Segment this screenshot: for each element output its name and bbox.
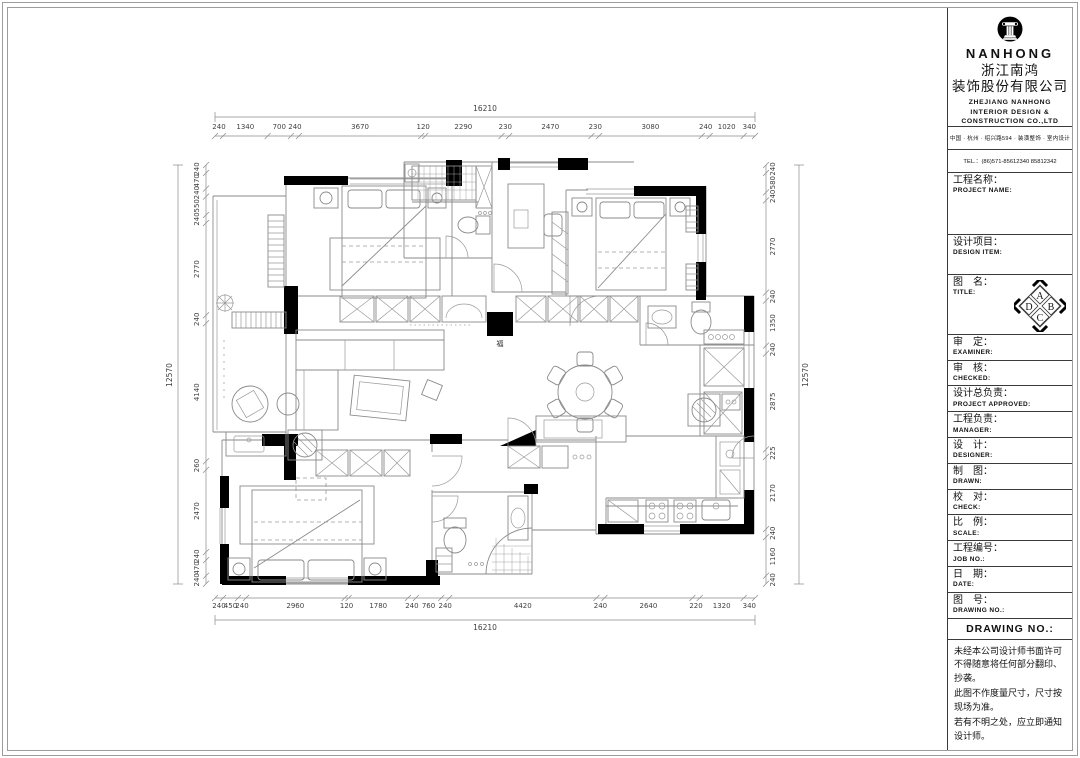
- bedroom-top-left: [314, 186, 446, 298]
- svg-text:1160: 1160: [769, 548, 777, 566]
- brand-name-en: ZHEJIANG NANHONG INTERIOR DESIGN & CONST…: [961, 98, 1058, 126]
- svg-text:2770: 2770: [769, 238, 777, 256]
- drawing-no-header: DRAWING NO.:: [948, 618, 1072, 639]
- svg-text:760: 760: [422, 602, 435, 610]
- svg-text:240: 240: [212, 123, 225, 131]
- brand-section: NANHONG 浙江南鸿 装饰股份有限公司 ZHEJIANG NANHONG I…: [948, 8, 1072, 126]
- svg-text:240: 240: [769, 162, 777, 175]
- svg-text:2290: 2290: [454, 123, 472, 131]
- svg-text:240: 240: [405, 602, 418, 610]
- svg-text:700: 700: [273, 123, 286, 131]
- svg-text:340: 340: [743, 602, 756, 610]
- balcony: [216, 215, 286, 400]
- svg-text:2170: 2170: [769, 484, 777, 502]
- svg-text:580: 580: [769, 176, 777, 189]
- svg-text:1320: 1320: [713, 602, 731, 610]
- dim-total-bottom: 16210: [473, 623, 497, 632]
- field-manager: 工程负责： MANAGER:: [948, 411, 1072, 437]
- bathroom-master: [436, 496, 532, 574]
- entry-arrow: [500, 430, 536, 446]
- svg-text:3670: 3670: [351, 123, 369, 131]
- interior-walls: [213, 162, 754, 584]
- svg-text:240: 240: [439, 602, 452, 610]
- field-designer: 设 计： DESIGNER:: [948, 437, 1072, 463]
- field-title: 图 名： TITLE: A B C D: [948, 274, 1072, 334]
- orientation-label-a: A: [1036, 291, 1044, 302]
- svg-text:240: 240: [235, 602, 248, 610]
- field-scale: 比 例： SCALE:: [948, 514, 1072, 540]
- svg-text:2470: 2470: [541, 123, 559, 131]
- svg-text:240: 240: [193, 549, 201, 562]
- svg-text:4420: 4420: [514, 602, 532, 610]
- svg-text:240: 240: [288, 123, 301, 131]
- orientation-label-b: B: [1048, 302, 1055, 313]
- svg-text:220: 220: [689, 602, 702, 610]
- titleblock-fields: 工程名称： PROJECT NAME: 设计项目： DESIGN ITEM: 图…: [948, 172, 1072, 618]
- field-job-no: 工程编号： JOB NO.:: [948, 540, 1072, 566]
- svg-text:1350: 1350: [769, 314, 777, 332]
- svg-text:470: 470: [193, 561, 201, 574]
- svg-text:2875: 2875: [769, 393, 777, 411]
- field-project-approved: 设计总负责： PROJECT APPROVED:: [948, 385, 1072, 411]
- svg-text:470: 470: [193, 174, 201, 187]
- nanhong-logo-icon: [987, 16, 1033, 42]
- company-address: 中国 · 杭州 · 绍兴路594 · 装潢整饰 · 室内设计: [948, 126, 1072, 149]
- svg-text:2960: 2960: [286, 602, 304, 610]
- svg-text:240: 240: [769, 190, 777, 203]
- svg-text:240: 240: [769, 343, 777, 356]
- field-design-item: 设计项目： DESIGN ITEM:: [948, 234, 1072, 274]
- title-block: NANHONG 浙江南鸿 装饰股份有限公司 ZHEJIANG NANHONG I…: [947, 8, 1072, 750]
- field-drawing-no: 图 号： DRAWING NO.:: [948, 592, 1072, 618]
- copyright-notes: 未经本公司设计师书面许可不得随意将任何部分翻印、抄袭。 此图不作度量尺寸，尺寸按…: [948, 639, 1072, 751]
- svg-text:2770: 2770: [193, 260, 201, 278]
- field-project-name: 工程名称： PROJECT NAME:: [948, 172, 1072, 234]
- svg-text:240: 240: [769, 573, 777, 586]
- company-tel: TEL.：(86)571-85612340 85812342: [948, 149, 1072, 172]
- fortune-character: 福: [497, 339, 504, 348]
- svg-text:260: 260: [193, 459, 201, 472]
- dim-total-right: 12570: [801, 363, 810, 387]
- dim-total-left: 12570: [165, 363, 174, 387]
- svg-text:240: 240: [769, 526, 777, 539]
- svg-text:240: 240: [193, 212, 201, 225]
- svg-text:1020: 1020: [718, 123, 736, 131]
- svg-text:2640: 2640: [639, 602, 657, 610]
- svg-text:240: 240: [193, 162, 201, 175]
- note-line: 未经本公司设计师书面许可不得随意将任何部分翻印、抄袭。: [954, 645, 1066, 686]
- overall-dimensions: 16210 16210 12570 12570: [165, 104, 810, 632]
- svg-text:550: 550: [193, 199, 201, 212]
- svg-text:230: 230: [499, 123, 512, 131]
- svg-text:225: 225: [769, 446, 777, 459]
- svg-text:340: 340: [743, 123, 756, 131]
- orientation-symbol: A B C D: [1014, 280, 1066, 332]
- field-date: 日 期： DATE:: [948, 566, 1072, 592]
- field-checked: 审 核： CHECKED:: [948, 360, 1072, 386]
- orientation-label-c: C: [1037, 313, 1044, 324]
- brand-name-cn: 浙江南鸿 装饰股份有限公司: [952, 63, 1068, 95]
- dim-total-top: 16210: [473, 104, 497, 113]
- svg-text:240: 240: [193, 313, 201, 326]
- svg-text:240: 240: [193, 186, 201, 199]
- note-line: 若有不明之处，应立即通知设计师。: [954, 716, 1066, 743]
- bathroom-right: [648, 302, 744, 434]
- drawing-sheet: 16210 16210 12570 12570 2401340700240367…: [0, 0, 1080, 758]
- svg-text:240: 240: [193, 573, 201, 586]
- field-check: 校 对： CHECK:: [948, 489, 1072, 515]
- field-drawn: 制 图： DRAWN:: [948, 463, 1072, 489]
- svg-text:1780: 1780: [369, 602, 387, 610]
- bedroom-top-right: [552, 198, 698, 294]
- svg-text:120: 120: [340, 602, 353, 610]
- living-room: [232, 330, 444, 430]
- field-examiner: 审 定： EXAMINER:: [948, 334, 1072, 360]
- floor-plan: 16210 16210 12570 12570 2401340700240367…: [0, 0, 945, 758]
- svg-text:240: 240: [769, 290, 777, 303]
- svg-text:120: 120: [417, 123, 430, 131]
- svg-text:240: 240: [594, 602, 607, 610]
- windows: [213, 163, 749, 583]
- svg-text:4140: 4140: [193, 383, 201, 401]
- note-line: 此图不作度量尺寸，尺寸按现场为准。: [954, 687, 1066, 714]
- svg-text:230: 230: [589, 123, 602, 131]
- bedroom-master: [226, 430, 410, 582]
- svg-text:240: 240: [699, 123, 712, 131]
- svg-text:3080: 3080: [641, 123, 659, 131]
- svg-text:1340: 1340: [236, 123, 254, 131]
- brand-name-latin: NANHONG: [966, 46, 1054, 61]
- orientation-label-d: D: [1025, 302, 1032, 313]
- study: [508, 184, 562, 248]
- svg-text:2470: 2470: [193, 502, 201, 520]
